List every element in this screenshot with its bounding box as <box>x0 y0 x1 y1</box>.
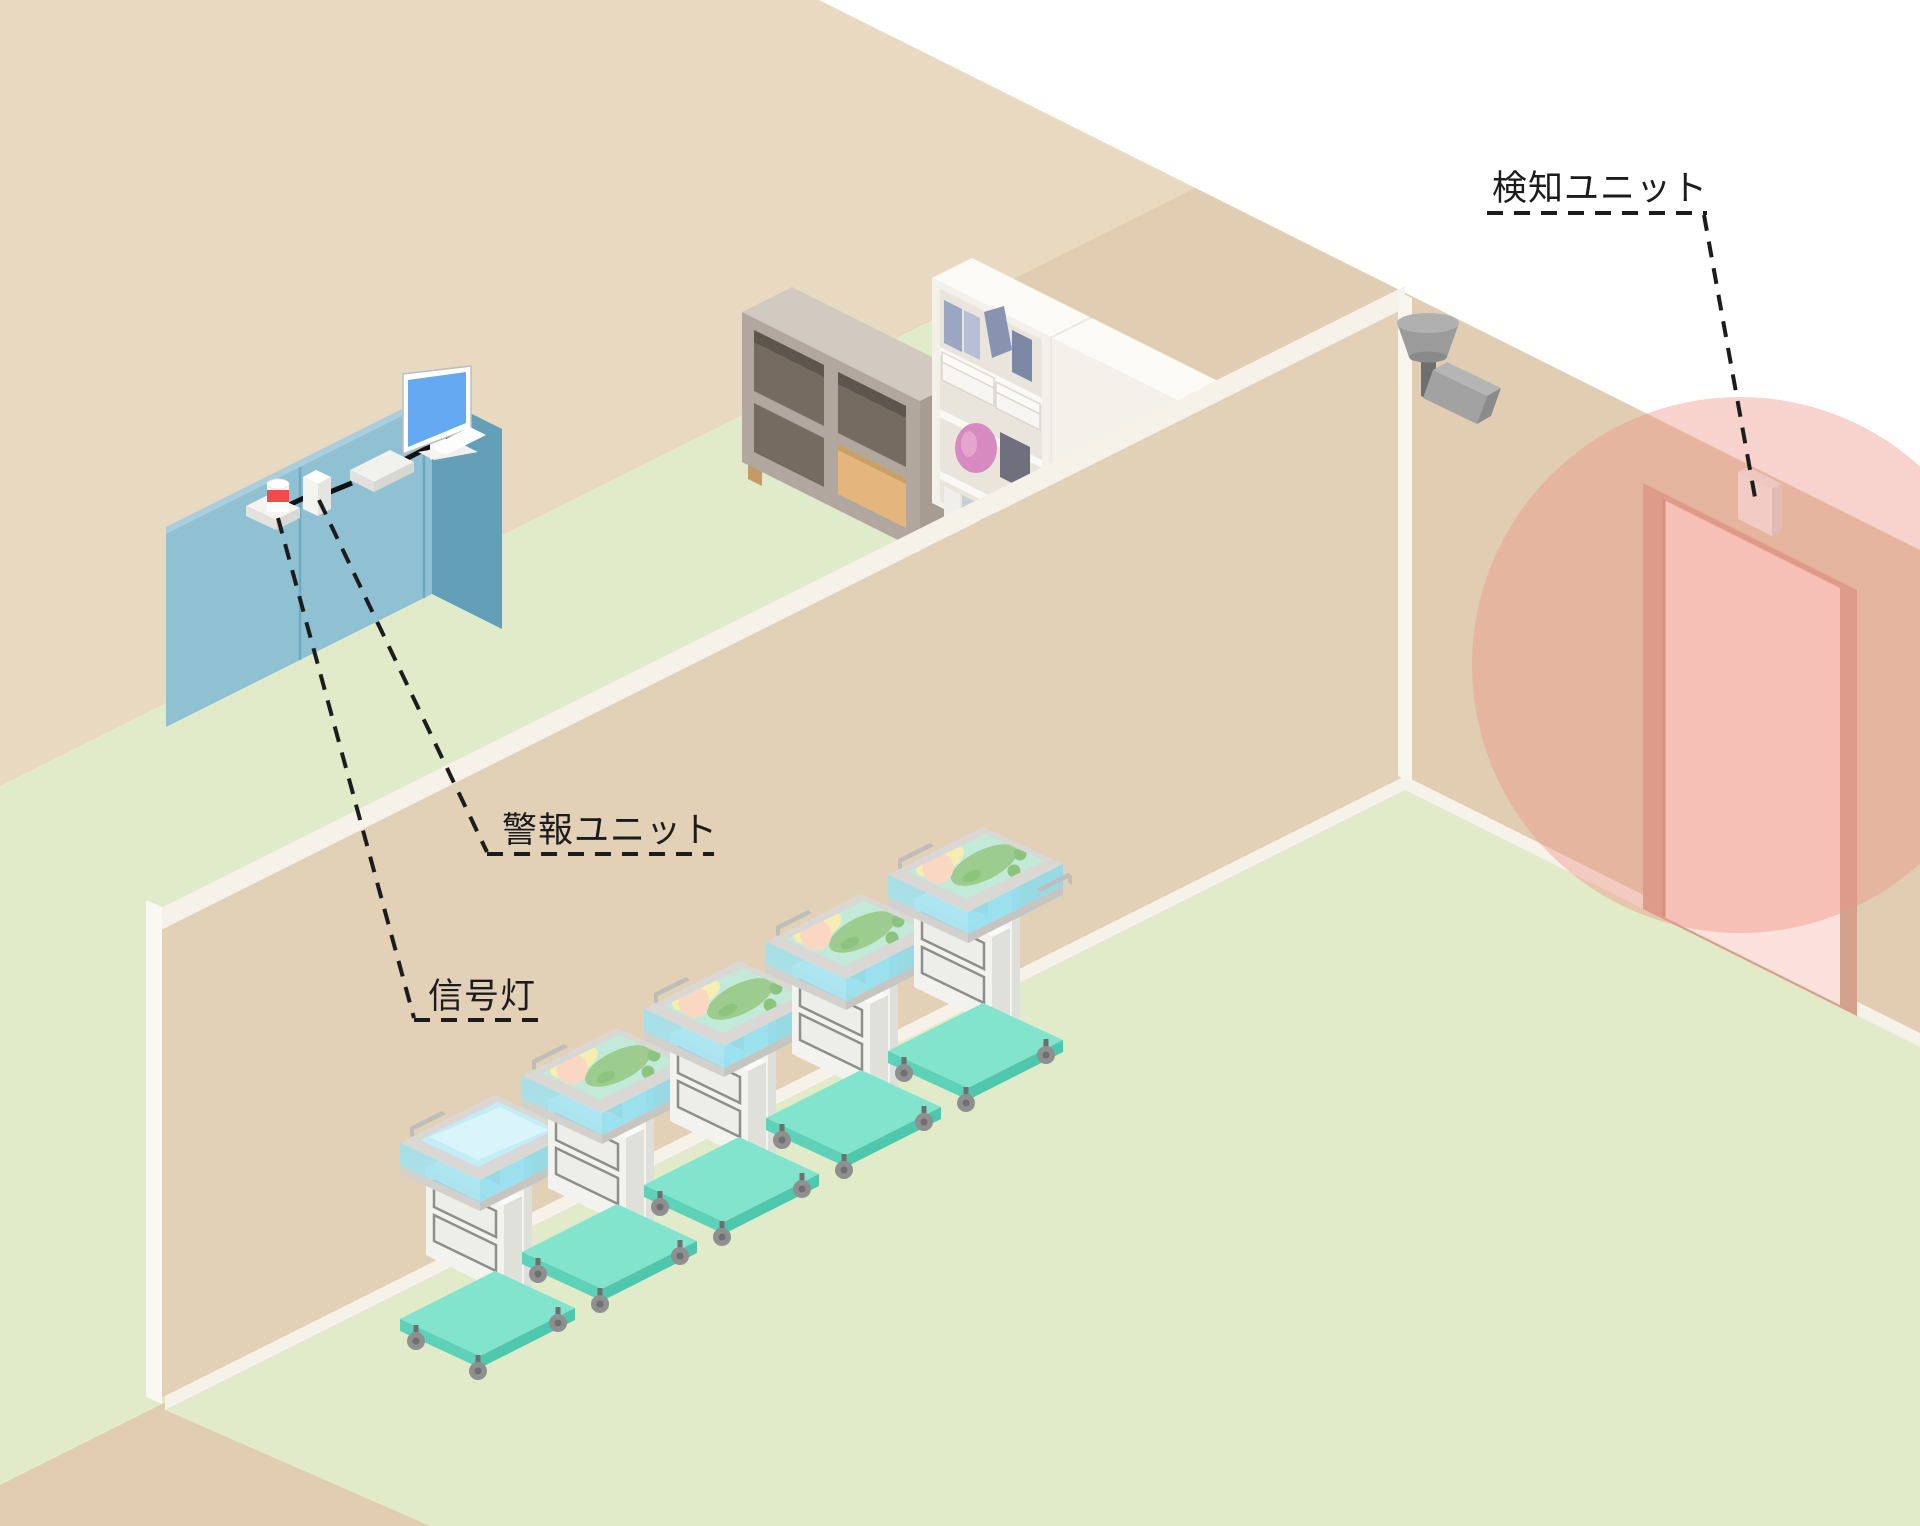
isometric-scene: 信号灯 警報ユニット 検知ユニット <box>0 0 1920 1526</box>
nursery-security-illustration: 信号灯 警報ユニット 検知ユニット <box>0 0 1920 1526</box>
wall-corner-edge <box>1398 291 1412 783</box>
label-alarm-unit: 警報ユニット <box>502 811 718 851</box>
label-detection-unit: 検知ユニット <box>1492 169 1708 209</box>
label-signal-light: 信号灯 <box>428 977 536 1017</box>
alarm-unit <box>303 470 331 516</box>
partition-wall-end-edge <box>146 900 162 1404</box>
signal-light-red-band <box>267 490 289 502</box>
